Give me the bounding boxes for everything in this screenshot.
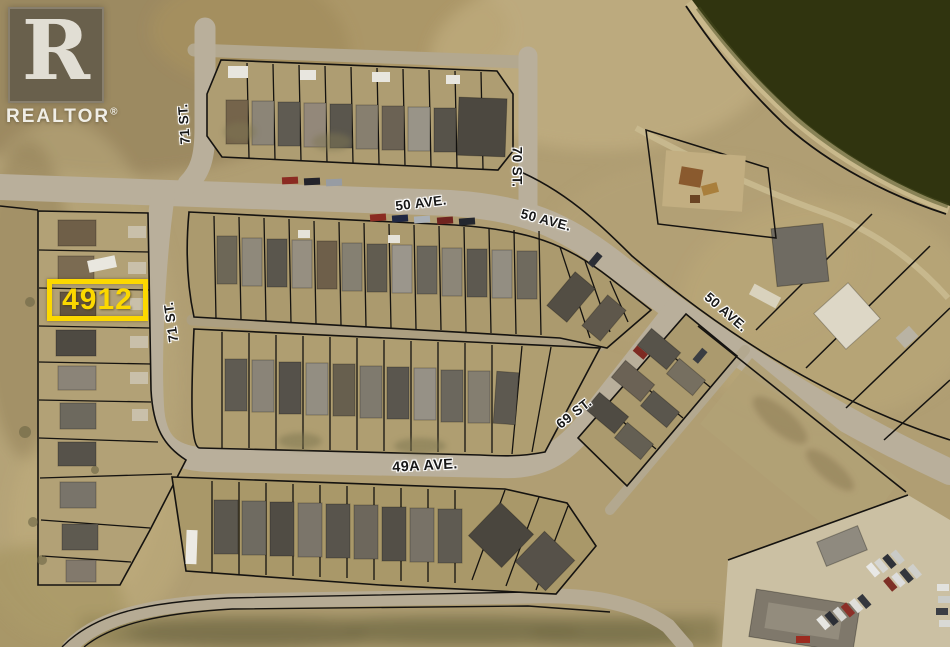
lot-highlight: 4912: [47, 279, 148, 321]
realtor-brand-word: REALTOR: [6, 106, 110, 127]
realtor-watermark: R REALTOR®: [8, 7, 126, 128]
map-canvas: [0, 0, 950, 647]
aerial-listing-map: R REALTOR® 4912 71 ST. 50 AVE. 50 AVE. 7…: [0, 0, 950, 647]
street-label-70-st: 70 ST.: [510, 147, 525, 188]
realtor-logo-letter: R: [22, 10, 90, 92]
realtor-logo: R: [8, 7, 104, 103]
street-label-71-st-top: 71 ST.: [175, 103, 193, 145]
block-mid-lower: [192, 329, 600, 456]
registered-trademark-symbol: ®: [110, 107, 117, 118]
street-label-49a-ave: 49A AVE.: [392, 456, 458, 475]
block-top: [207, 60, 513, 170]
realtor-brand-text: REALTOR®: [6, 106, 126, 128]
lot-number: 4912: [62, 283, 133, 317]
